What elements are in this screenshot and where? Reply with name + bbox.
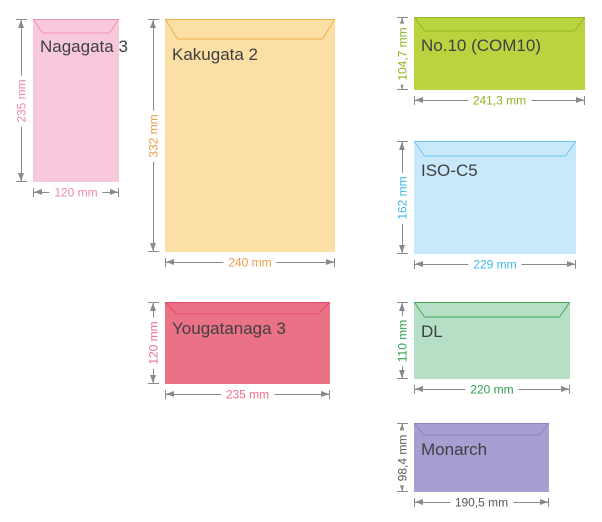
arrow-right-icon <box>326 259 334 265</box>
width-label: 190,5 mm <box>450 496 513 509</box>
arrow-down-icon <box>18 173 24 181</box>
envelope-kakugata-2: Kakugata 2 332 mm 240 mm <box>165 19 335 252</box>
height-dimension: 110 mm <box>397 302 409 379</box>
arrow-up-icon <box>150 20 156 28</box>
width-dimension: 190,5 mm <box>414 497 549 509</box>
arrow-up-icon <box>150 303 156 311</box>
arrow-left-icon <box>415 261 423 267</box>
arrow-down-icon <box>150 243 156 251</box>
height-label: 110 mm <box>395 315 410 365</box>
envelope-dl: DL 110 mm 220 mm <box>414 302 570 379</box>
envelope-size-diagram: Nagagata 3 235 mm 120 mm Kakugata 2 <box>0 0 602 522</box>
envelope-body: ISO-C5 <box>414 141 576 254</box>
width-label: 235 mm <box>221 388 274 401</box>
envelope-name: Yougatanaga 3 <box>172 319 286 339</box>
envelope-body: Yougatanaga 3 <box>165 302 330 384</box>
arrow-left-icon <box>166 391 174 397</box>
envelope-name: DL <box>421 322 443 342</box>
width-dimension: 235 mm <box>165 389 330 401</box>
envelope-flap-icon <box>414 302 570 318</box>
arrow-right-icon <box>321 391 329 397</box>
envelope-flap-icon <box>165 302 330 315</box>
arrow-right-icon <box>540 499 548 505</box>
width-label: 241,3 mm <box>468 94 531 107</box>
envelope-body: DL <box>414 302 570 379</box>
arrow-left-icon <box>415 386 423 392</box>
width-dimension: 241,3 mm <box>414 95 585 107</box>
height-dimension: 235 mm <box>16 19 28 182</box>
arrow-left-icon <box>34 189 42 195</box>
height-dimension: 332 mm <box>148 19 160 252</box>
height-dimension: 104,7 mm <box>397 17 409 90</box>
envelope-monarch: Monarch 98,4 mm 190,5 mm <box>414 423 549 492</box>
arrow-up-icon <box>18 20 24 28</box>
envelope-flap-icon <box>414 423 549 436</box>
width-label: 240 mm <box>223 256 276 269</box>
envelope-body: Monarch <box>414 423 549 492</box>
arrow-right-icon <box>567 261 575 267</box>
envelope-body: Kakugata 2 <box>165 19 335 252</box>
arrow-down-icon <box>399 370 405 378</box>
envelope-name: Monarch <box>421 440 487 460</box>
envelope-flap-icon <box>33 19 119 34</box>
arrow-down-icon <box>150 375 156 383</box>
height-label: 120 mm <box>146 317 161 368</box>
height-label: 235 mm <box>14 75 29 126</box>
width-label: 120 mm <box>49 186 102 199</box>
width-label: 229 mm <box>468 258 521 271</box>
envelope-name: Kakugata 2 <box>172 45 258 65</box>
arrow-right-icon <box>110 189 118 195</box>
width-label: 220 mm <box>465 383 518 396</box>
width-dimension: 240 mm <box>165 257 335 269</box>
arrow-right-icon <box>561 386 569 392</box>
arrow-right-icon <box>576 97 584 103</box>
arrow-left-icon <box>415 97 423 103</box>
arrow-up-icon <box>399 303 405 311</box>
envelope-yougatanaga-3: Yougatanaga 3 120 mm 235 mm <box>165 302 330 384</box>
envelope-body: No.10 (COM10) <box>414 17 585 90</box>
width-dimension: 120 mm <box>33 187 119 199</box>
height-dimension: 162 mm <box>397 141 409 254</box>
height-label: 98,4 mm <box>395 430 410 485</box>
height-dimension: 120 mm <box>148 302 160 384</box>
width-dimension: 229 mm <box>414 259 576 271</box>
height-label: 162 mm <box>395 172 410 223</box>
envelope-flap-icon <box>414 141 576 157</box>
envelope-nagagata-3: Nagagata 3 235 mm 120 mm <box>33 19 119 182</box>
arrow-up-icon <box>399 142 405 150</box>
envelope-no10-com10: No.10 (COM10) 104,7 mm 241,3 mm <box>414 17 585 90</box>
envelope-name: Nagagata 3 <box>40 37 128 57</box>
envelope-flap-icon <box>165 19 335 40</box>
height-label: 104,7 mm <box>395 23 410 84</box>
envelope-flap-icon <box>414 17 585 32</box>
arrow-left-icon <box>415 499 423 505</box>
height-label: 332 mm <box>146 110 161 161</box>
envelope-name: ISO-C5 <box>421 161 478 181</box>
arrow-left-icon <box>166 259 174 265</box>
envelope-iso-c5: ISO-C5 162 mm 229 mm <box>414 141 576 254</box>
envelope-name: No.10 (COM10) <box>421 36 541 56</box>
envelope-body: Nagagata 3 <box>33 19 119 182</box>
width-dimension: 220 mm <box>414 384 570 396</box>
arrow-down-icon <box>399 245 405 253</box>
height-dimension: 98,4 mm <box>397 423 409 492</box>
